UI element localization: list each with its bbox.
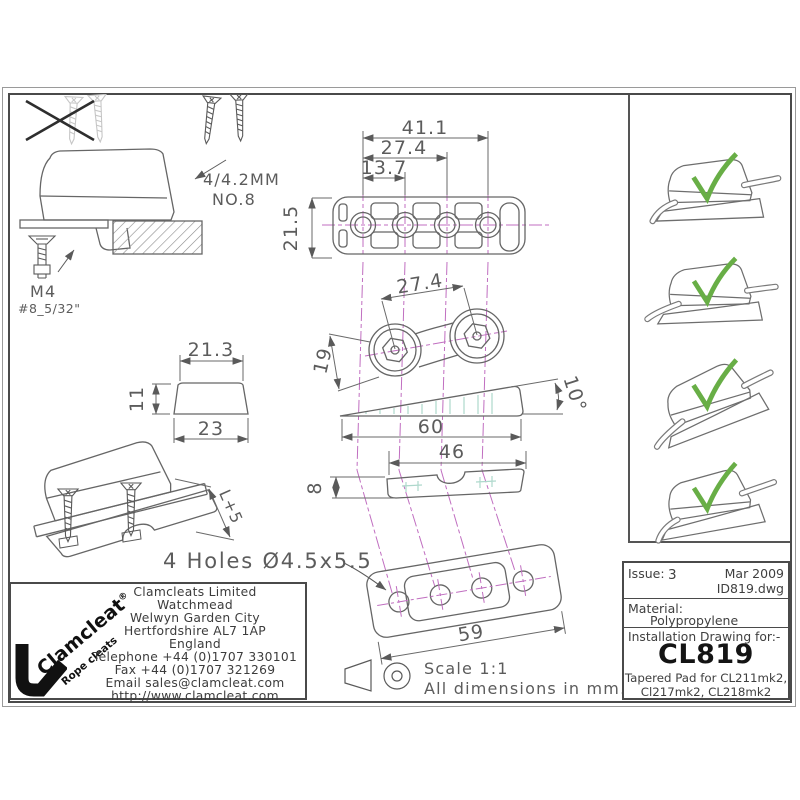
- hex-recess-view: [369, 309, 504, 376]
- end-view: [174, 383, 248, 414]
- issue-date: Mar 2009: [725, 566, 784, 581]
- dim-27-4: 27.4: [381, 137, 428, 159]
- material-value: Polypropylene: [650, 613, 738, 628]
- usage-example-sketch: [638, 335, 784, 450]
- profile-view: [387, 469, 524, 498]
- dim-8: 8: [304, 481, 326, 494]
- screw-size-note: 4/4.2MM: [203, 170, 280, 189]
- dim-10deg: 10°: [559, 373, 591, 415]
- hidden-detail-lines: [366, 393, 492, 414]
- title-block-issue-row: Issue: 3 Mar 2009 ID819.dwg: [624, 563, 788, 599]
- drawing-sheet: 4/4.2MM NO.8 M4 #8_5/32": [0, 0, 800, 800]
- dim-41-1: 41.1: [402, 117, 449, 139]
- dim-23: 23: [198, 418, 224, 440]
- part-number: CL819: [624, 639, 788, 670]
- part-description-line2: Cl217mk2, CL218mk2: [624, 685, 788, 699]
- units-note: All dimensions in mm.: [424, 679, 626, 698]
- drawing-file: ID819.dwg: [717, 581, 784, 596]
- scale-note: Scale 1:1: [424, 659, 509, 678]
- holes-note: 4 Holes Ø4.5x5.5: [163, 549, 373, 573]
- m4-label: M4: [30, 282, 56, 301]
- address-lines: Clamcleats Limited Watchmead Welwyn Gard…: [87, 586, 303, 703]
- m4-leader: [58, 250, 74, 272]
- dim-21-5: 21.5: [280, 205, 302, 252]
- profile-view-dimensions: [330, 451, 526, 498]
- dim-hex-27-4: 27.4: [395, 270, 445, 299]
- address-block: Clamcleat® Rope cleats Clamcleats Limite…: [9, 582, 307, 700]
- check-icon: [694, 463, 736, 509]
- tapered-pad-hatch: [113, 221, 202, 254]
- address-line: http://www.clamcleat.com: [87, 690, 303, 703]
- dim-19: 19: [309, 345, 336, 376]
- centerlines: [322, 188, 552, 596]
- bottom-face-view: 59: [365, 543, 568, 665]
- usage-panel: [628, 95, 790, 543]
- dim-11: 11: [126, 386, 148, 412]
- issue-value: 3: [668, 567, 677, 583]
- no-screws-icon: [26, 94, 109, 144]
- dim-21-3: 21.3: [188, 339, 235, 361]
- wedge-side-view: [340, 387, 523, 417]
- screw-gauge-note: NO.8: [212, 190, 256, 209]
- bolted-cleat-view: L+5: [20, 428, 247, 563]
- usage-example-sketch: [638, 245, 784, 340]
- title-block: Issue: 3 Mar 2009 ID819.dwg Material: Po…: [622, 561, 790, 700]
- dim-l-plus-5: L+5: [215, 487, 247, 527]
- issue-label: Issue:: [628, 566, 665, 581]
- dim-46: 46: [439, 441, 465, 463]
- cleat-side-view: [20, 149, 202, 254]
- dim-13-7: 13.7: [361, 157, 408, 179]
- wood-screws-icon: [197, 94, 249, 145]
- hidden-detail-lines: [402, 476, 496, 492]
- usage-example-sketch: [638, 137, 784, 237]
- cross-out-icon: [26, 101, 94, 140]
- m4-sub-label: #8_5/32": [18, 301, 81, 316]
- projection-symbol-icon: [345, 660, 410, 691]
- title-block-material-row: Material: Polypropylene: [624, 599, 788, 628]
- dim-59: 59: [456, 620, 486, 646]
- part-description-line1: Tapered Pad for CL211mk2,: [624, 671, 788, 685]
- usage-example-sketch: [638, 450, 784, 545]
- dim-60: 60: [418, 416, 444, 438]
- m4-bolt-icon: [29, 236, 55, 278]
- title-block-drawing-row: Installation Drawing for:- CL819 Tapered…: [624, 628, 788, 700]
